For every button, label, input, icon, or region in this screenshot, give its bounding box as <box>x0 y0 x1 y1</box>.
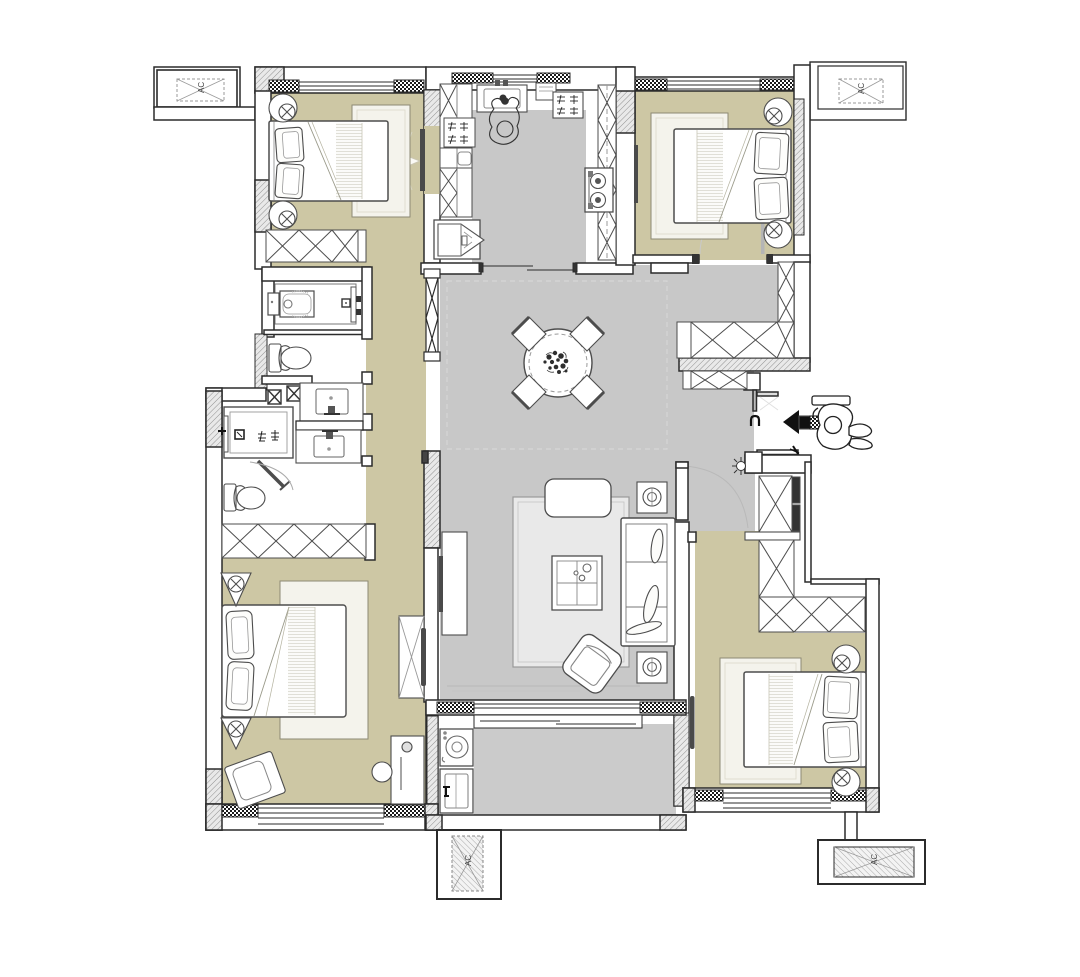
svg-text:AC: AC <box>464 855 473 866</box>
svg-text:AC: AC <box>197 82 206 93</box>
svg-text:AC: AC <box>870 854 879 865</box>
svg-text:AC: AC <box>857 83 866 94</box>
